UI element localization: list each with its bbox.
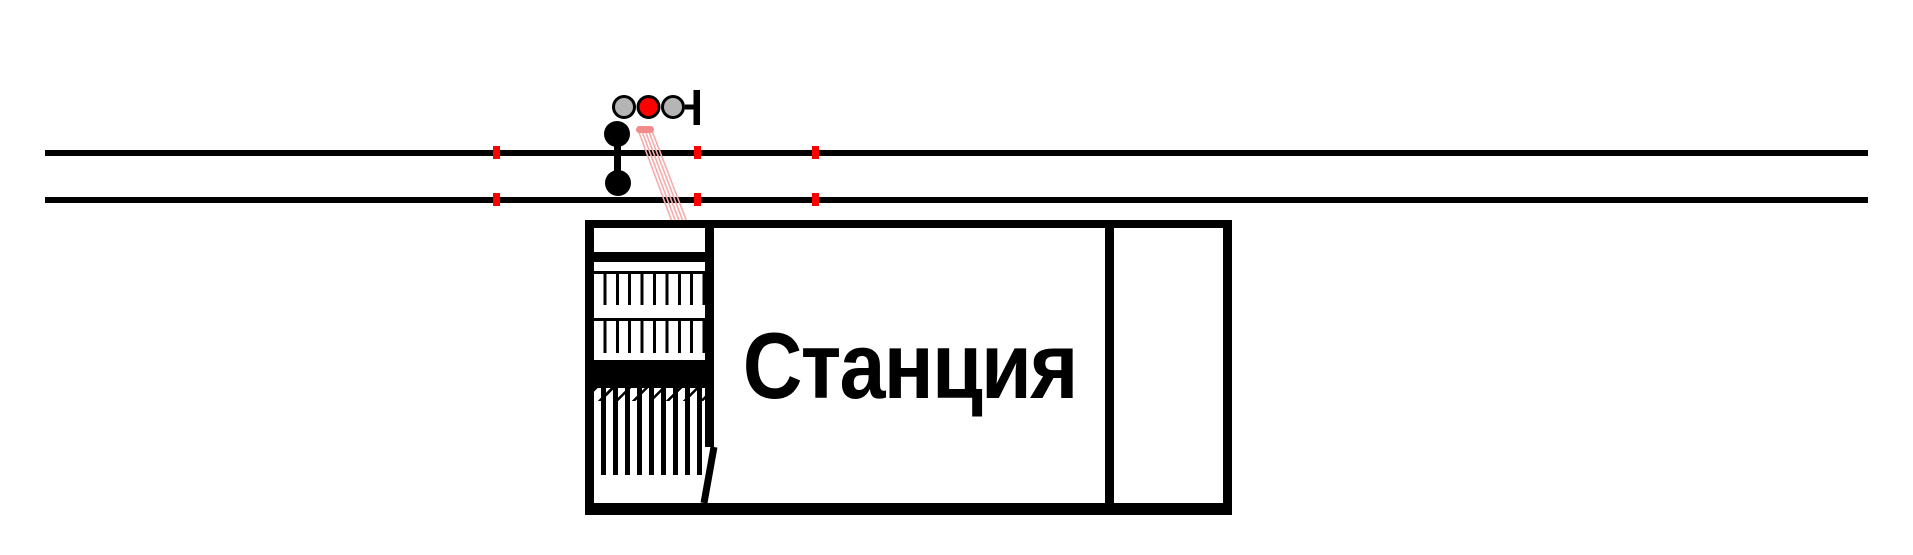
equipment-comb-2	[594, 318, 705, 353]
railway-station-diagram: Станция	[0, 0, 1913, 555]
equipment-band-upper	[594, 252, 705, 262]
signal-cable-hatch	[630, 120, 700, 235]
track-joint-marker	[493, 146, 500, 159]
building-divider-right	[1105, 228, 1114, 503]
signal-lamp-left-icon	[614, 97, 635, 118]
station-building-interior: Станция	[594, 228, 1223, 503]
track-joint-marker	[493, 193, 500, 206]
equipment-comb-3	[594, 388, 705, 475]
cable-cap-top	[636, 126, 654, 133]
station-label: Станция	[743, 312, 1077, 420]
impedance-bond-lower-icon	[605, 170, 631, 196]
track-joint-marker	[812, 193, 819, 206]
signal-lamp-right-icon	[663, 97, 684, 118]
building-divider-left	[705, 228, 714, 447]
station-label-zone: Станция	[714, 228, 1105, 503]
equipment-comb-3-hatch	[594, 388, 705, 401]
equipment-band-lower	[594, 360, 705, 388]
track-lower-line	[45, 197, 1868, 203]
equipment-comb-1	[594, 271, 705, 305]
track-joint-marker	[812, 146, 819, 159]
signal-lamp-middle-icon	[638, 97, 659, 118]
station-building: Станция	[585, 220, 1232, 515]
track-upper-line	[45, 150, 1868, 156]
